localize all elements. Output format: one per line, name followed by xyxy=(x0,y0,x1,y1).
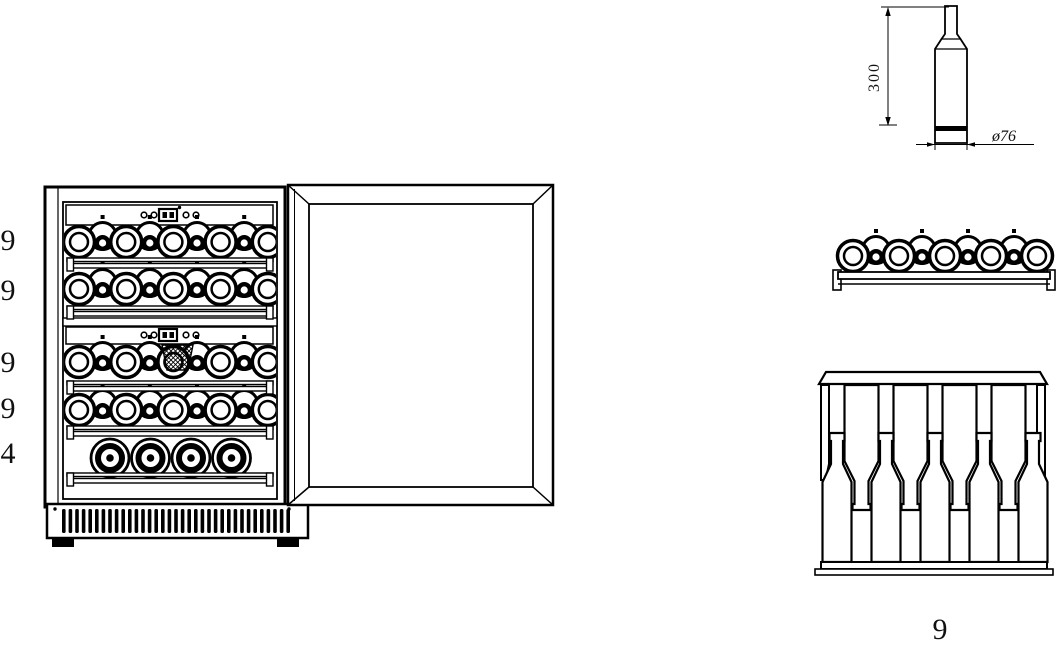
bottle-outline xyxy=(935,6,967,143)
row-1-capacity-label: 9 xyxy=(1,224,16,257)
standing-bottles-view xyxy=(815,372,1053,575)
height-dimension-label: 300 xyxy=(866,62,883,92)
shelf-board xyxy=(838,272,1050,279)
bottle-dimension-detail: 300 ø76 xyxy=(866,6,1034,150)
right-foot xyxy=(277,538,299,547)
diameter-dimension-label: ø76 xyxy=(991,128,1016,145)
wine-cooler-diagram: 9 9 9 9 4 300 ø76 xyxy=(0,0,1064,648)
row-5-capacity-label: 4 xyxy=(1,437,16,470)
technical-drawing-canvas: 9 9 9 9 4 300 ø76 xyxy=(0,0,1064,648)
top-board xyxy=(819,372,1047,384)
row-capacity-labels: 9 9 9 9 4 xyxy=(1,224,16,470)
display-upper xyxy=(159,209,177,221)
row-4-capacity-label: 9 xyxy=(1,392,16,425)
row-2-capacity-label: 9 xyxy=(1,274,16,307)
vent-grille xyxy=(47,504,308,538)
cabinet-front-view xyxy=(45,187,308,547)
bottom-shelf-capacity-label: 9 xyxy=(933,613,948,646)
left-foot xyxy=(52,538,74,547)
base-board xyxy=(821,562,1047,569)
diameter-dimension: ø76 xyxy=(916,128,1034,150)
glass-door-open xyxy=(288,185,553,505)
fan-unit xyxy=(162,345,193,370)
shelf-side-view xyxy=(833,229,1055,290)
row-3-capacity-label: 9 xyxy=(1,346,16,379)
display-lower xyxy=(159,329,177,341)
